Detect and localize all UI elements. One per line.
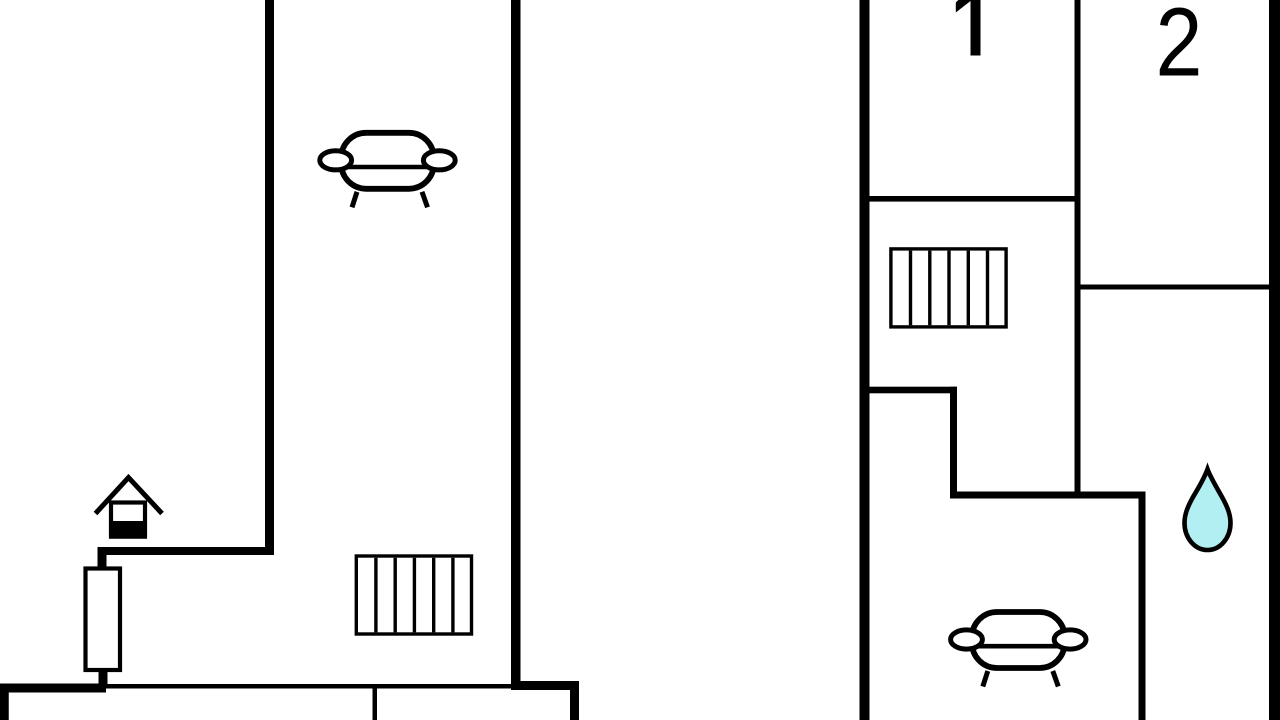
svg-text:2: 2: [1156, 0, 1203, 97]
